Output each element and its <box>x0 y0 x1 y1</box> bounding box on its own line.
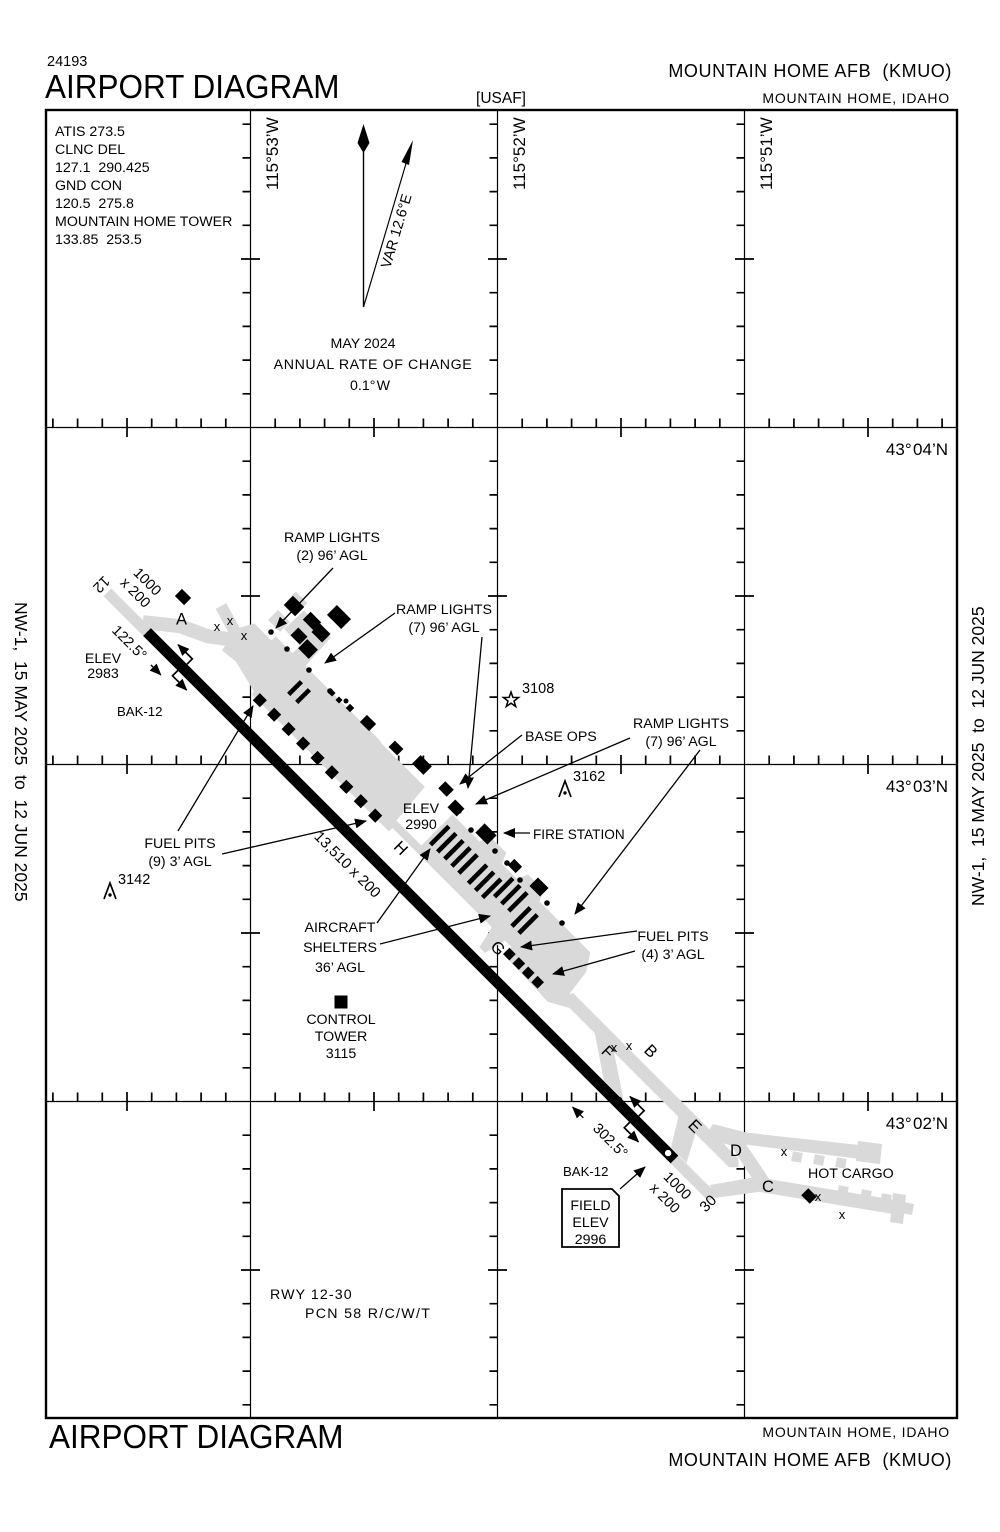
svg-text:BASE OPS: BASE OPS <box>525 729 597 745</box>
svg-text:2990: 2990 <box>405 817 437 833</box>
svg-text:ATIS 273.5: ATIS 273.5 <box>55 124 125 140</box>
svg-text:x: x <box>611 1040 618 1055</box>
svg-text:133.85 253.5: 133.85 253.5 <box>55 232 142 248</box>
svg-text:SHELTERS: SHELTERS <box>303 940 377 956</box>
svg-text:C: C <box>762 1178 774 1196</box>
svg-text:43° 04’N: 43° 04’N <box>886 440 948 459</box>
svg-text:CONTROL: CONTROL <box>306 1012 375 1028</box>
svg-text:x: x <box>815 1189 822 1204</box>
svg-text:x: x <box>214 619 221 634</box>
svg-text:AIRPORT DIAGRAM: AIRPORT DIAGRAM <box>49 1418 343 1455</box>
svg-text:NW-1, 15 MAY 2025 to 12 JUN: NW-1, 15 MAY 2025 to 12 JUN 2025 <box>11 602 31 902</box>
svg-text:x: x <box>227 613 234 628</box>
svg-text:x: x <box>839 1207 846 1222</box>
svg-text:MOUNTAIN HOME AFB (KMUO): MOUNTAIN HOME AFB (KMUO) <box>668 1450 952 1470</box>
svg-text:A: A <box>176 611 187 629</box>
svg-text:PCN 58 R/C/W/T: PCN 58 R/C/W/T <box>305 1306 431 1322</box>
svg-text:FUEL PITS: FUEL PITS <box>144 836 215 852</box>
svg-text:GND CON: GND CON <box>55 178 122 194</box>
svg-text:FIRE STATION: FIRE STATION <box>533 827 625 842</box>
svg-text:MOUNTAIN HOME TOWER: MOUNTAIN HOME TOWER <box>55 214 232 230</box>
svg-text:(4) 3’ AGL: (4) 3’ AGL <box>641 947 704 963</box>
svg-text:MOUNTAIN HOME, IDAHO: MOUNTAIN HOME, IDAHO <box>762 1424 950 1440</box>
svg-text:MOUNTAIN HOME AFB (KMUO): MOUNTAIN HOME AFB (KMUO) <box>668 61 952 81</box>
svg-text:43° 02’N: 43° 02’N <box>886 1114 948 1133</box>
svg-text:FIELD: FIELD <box>570 1198 610 1214</box>
svg-text:BAK-12: BAK-12 <box>563 1164 608 1179</box>
svg-text:NW-1, 15 MAY 2025 to 12 JUN: NW-1, 15 MAY 2025 to 12 JUN 2025 <box>968 606 988 906</box>
svg-text:ELEV: ELEV <box>572 1215 609 1231</box>
svg-text:3162: 3162 <box>573 769 605 785</box>
svg-text:MOUNTAIN HOME, IDAHO: MOUNTAIN HOME, IDAHO <box>762 90 950 106</box>
svg-text:ELEV: ELEV <box>85 651 122 667</box>
svg-text:(7) 96’ AGL: (7) 96’ AGL <box>408 620 479 636</box>
svg-text:ANNUAL RATE OF CHANGE: ANNUAL RATE OF CHANGE <box>274 357 473 373</box>
svg-text:FUEL PITS: FUEL PITS <box>637 929 708 945</box>
svg-text:2983: 2983 <box>87 666 119 682</box>
svg-text:3115: 3115 <box>326 1046 357 1062</box>
svg-text:3142: 3142 <box>118 872 150 888</box>
svg-text:CLNC DEL: CLNC DEL <box>55 142 125 158</box>
svg-text:D: D <box>730 1142 742 1160</box>
svg-text:AIRPORT DIAGRAM: AIRPORT DIAGRAM <box>45 68 339 105</box>
svg-text:RAMP LIGHTS: RAMP LIGHTS <box>633 716 729 732</box>
svg-text:0.1° W: 0.1° W <box>350 378 391 394</box>
svg-text:115°51’W: 115°51’W <box>757 117 776 190</box>
svg-text:115°53’W: 115°53’W <box>263 117 282 190</box>
svg-text:43° 03’N: 43° 03’N <box>886 777 948 796</box>
svg-text:RAMP LIGHTS: RAMP LIGHTS <box>396 602 492 618</box>
svg-text:x: x <box>241 628 248 643</box>
svg-text:36’ AGL: 36’ AGL <box>315 960 365 976</box>
svg-text:ELEV: ELEV <box>403 801 440 817</box>
svg-text:AIRCRAFT: AIRCRAFT <box>305 920 376 936</box>
svg-text:MAY 2024: MAY 2024 <box>331 336 396 352</box>
svg-text:(9) 3’ AGL: (9) 3’ AGL <box>148 854 211 870</box>
svg-text:TOWER: TOWER <box>315 1029 368 1045</box>
svg-text:3108: 3108 <box>522 681 554 697</box>
svg-text:RWY 12-30: RWY 12-30 <box>270 1287 353 1303</box>
svg-text:HOT CARGO: HOT CARGO <box>808 1166 894 1182</box>
svg-text:2996: 2996 <box>575 1232 607 1248</box>
svg-text:127.1 290.425: 127.1 290.425 <box>55 160 150 176</box>
svg-text:x: x <box>781 1144 788 1159</box>
svg-text:x: x <box>626 1038 633 1053</box>
svg-text:BAK-12: BAK-12 <box>117 704 162 719</box>
svg-text:120.5 275.8: 120.5 275.8 <box>55 196 134 212</box>
svg-text:(7) 96’ AGL: (7) 96’ AGL <box>645 734 716 750</box>
svg-text:[USAF]: [USAF] <box>476 90 526 107</box>
svg-text:RAMP LIGHTS: RAMP LIGHTS <box>284 530 380 546</box>
svg-text:(2) 96’ AGL: (2) 96’ AGL <box>296 548 367 564</box>
svg-text:115°52’W: 115°52’W <box>510 117 529 190</box>
